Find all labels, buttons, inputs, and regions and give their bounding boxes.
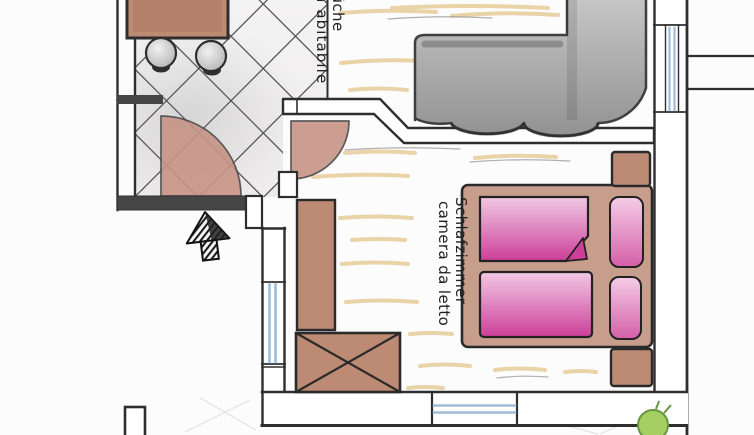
nightstand-bottom <box>611 349 652 386</box>
north-arrow-icon <box>183 209 232 262</box>
double-bed <box>462 185 652 347</box>
kitchen-label-de: Küche <box>329 0 346 32</box>
kitchen-table <box>127 0 228 38</box>
floor-plan-drawing <box>0 0 754 435</box>
floor-plan-canvas: Küche cucina abitabile Schlafzimmer came… <box>0 0 754 435</box>
bedroom-door-swing <box>291 121 349 179</box>
entrance-door-swing <box>161 116 241 196</box>
bedroom-label-it: camera da letto <box>435 201 452 326</box>
wardrobe <box>297 200 335 330</box>
nightstand-top <box>612 152 650 186</box>
duvet-top <box>480 197 588 261</box>
bedroom-label-de: Schlafzimmer <box>452 197 469 304</box>
duvet-bottom <box>480 272 592 337</box>
sofa <box>415 0 646 136</box>
pillow-bottom <box>610 277 641 339</box>
stool-1 <box>146 38 176 73</box>
kitchen-label-it: cucina abitabile <box>313 0 330 84</box>
pillow-top <box>610 197 643 267</box>
chest-x-box <box>296 333 400 392</box>
stool-2 <box>196 41 226 76</box>
